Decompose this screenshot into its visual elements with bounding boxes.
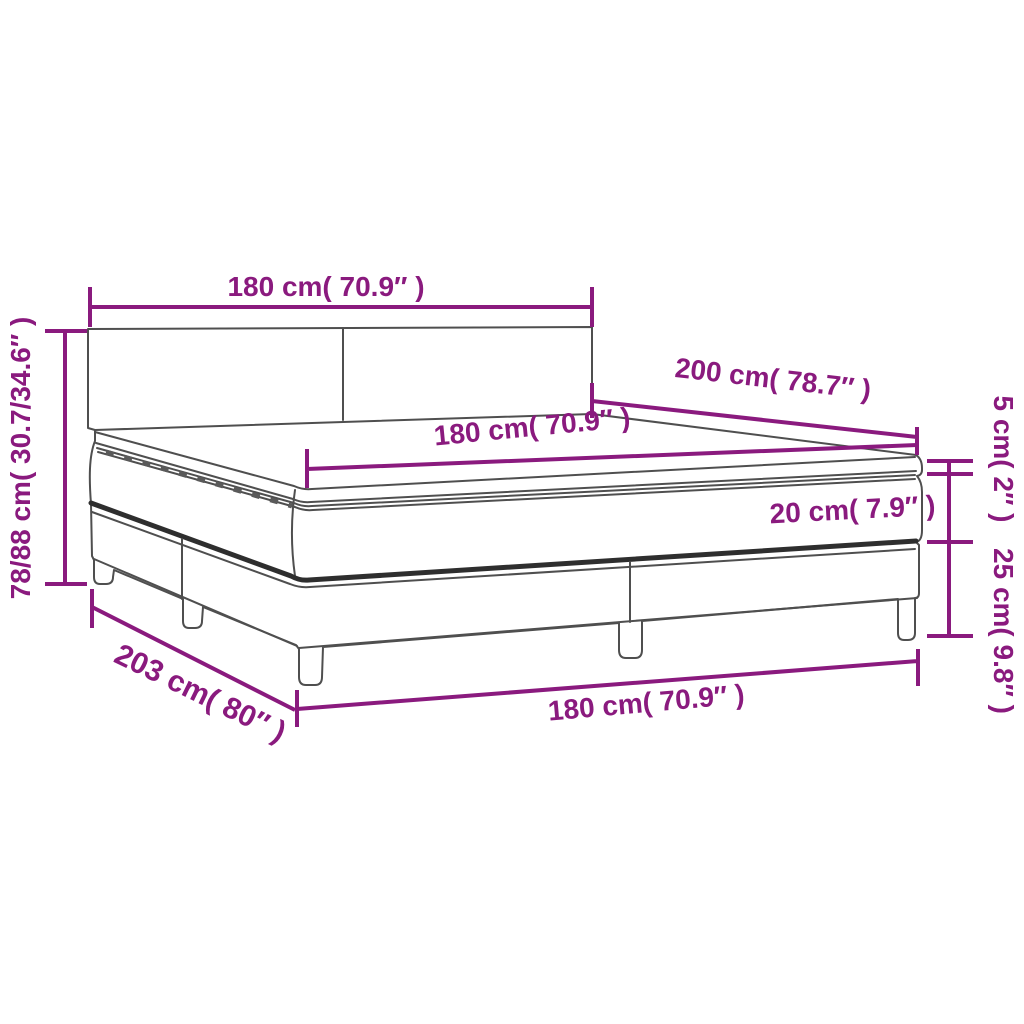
bed-length-label: 200 cm( 78.7″ )	[673, 352, 872, 405]
dim-height-stack-line	[927, 461, 973, 636]
bed-dimension-diagram: 180 cm( 70.9″ ) 78/88 cm( 30.7/34.6″ ) 2…	[0, 0, 1024, 1024]
topper-height-label: 5 cm( 2″ )	[988, 395, 1019, 522]
total-height-label: 78/88 cm( 30.7/34.6″ )	[5, 317, 36, 600]
diagram-canvas: 180 cm( 70.9″ ) 78/88 cm( 30.7/34.6″ ) 2…	[0, 0, 1024, 1024]
base-height-label: 25 cm( 9.8″ )	[988, 548, 1019, 714]
dim-total-height-line	[45, 331, 87, 584]
headboard-width-label: 180 cm( 70.9″ )	[227, 271, 424, 302]
